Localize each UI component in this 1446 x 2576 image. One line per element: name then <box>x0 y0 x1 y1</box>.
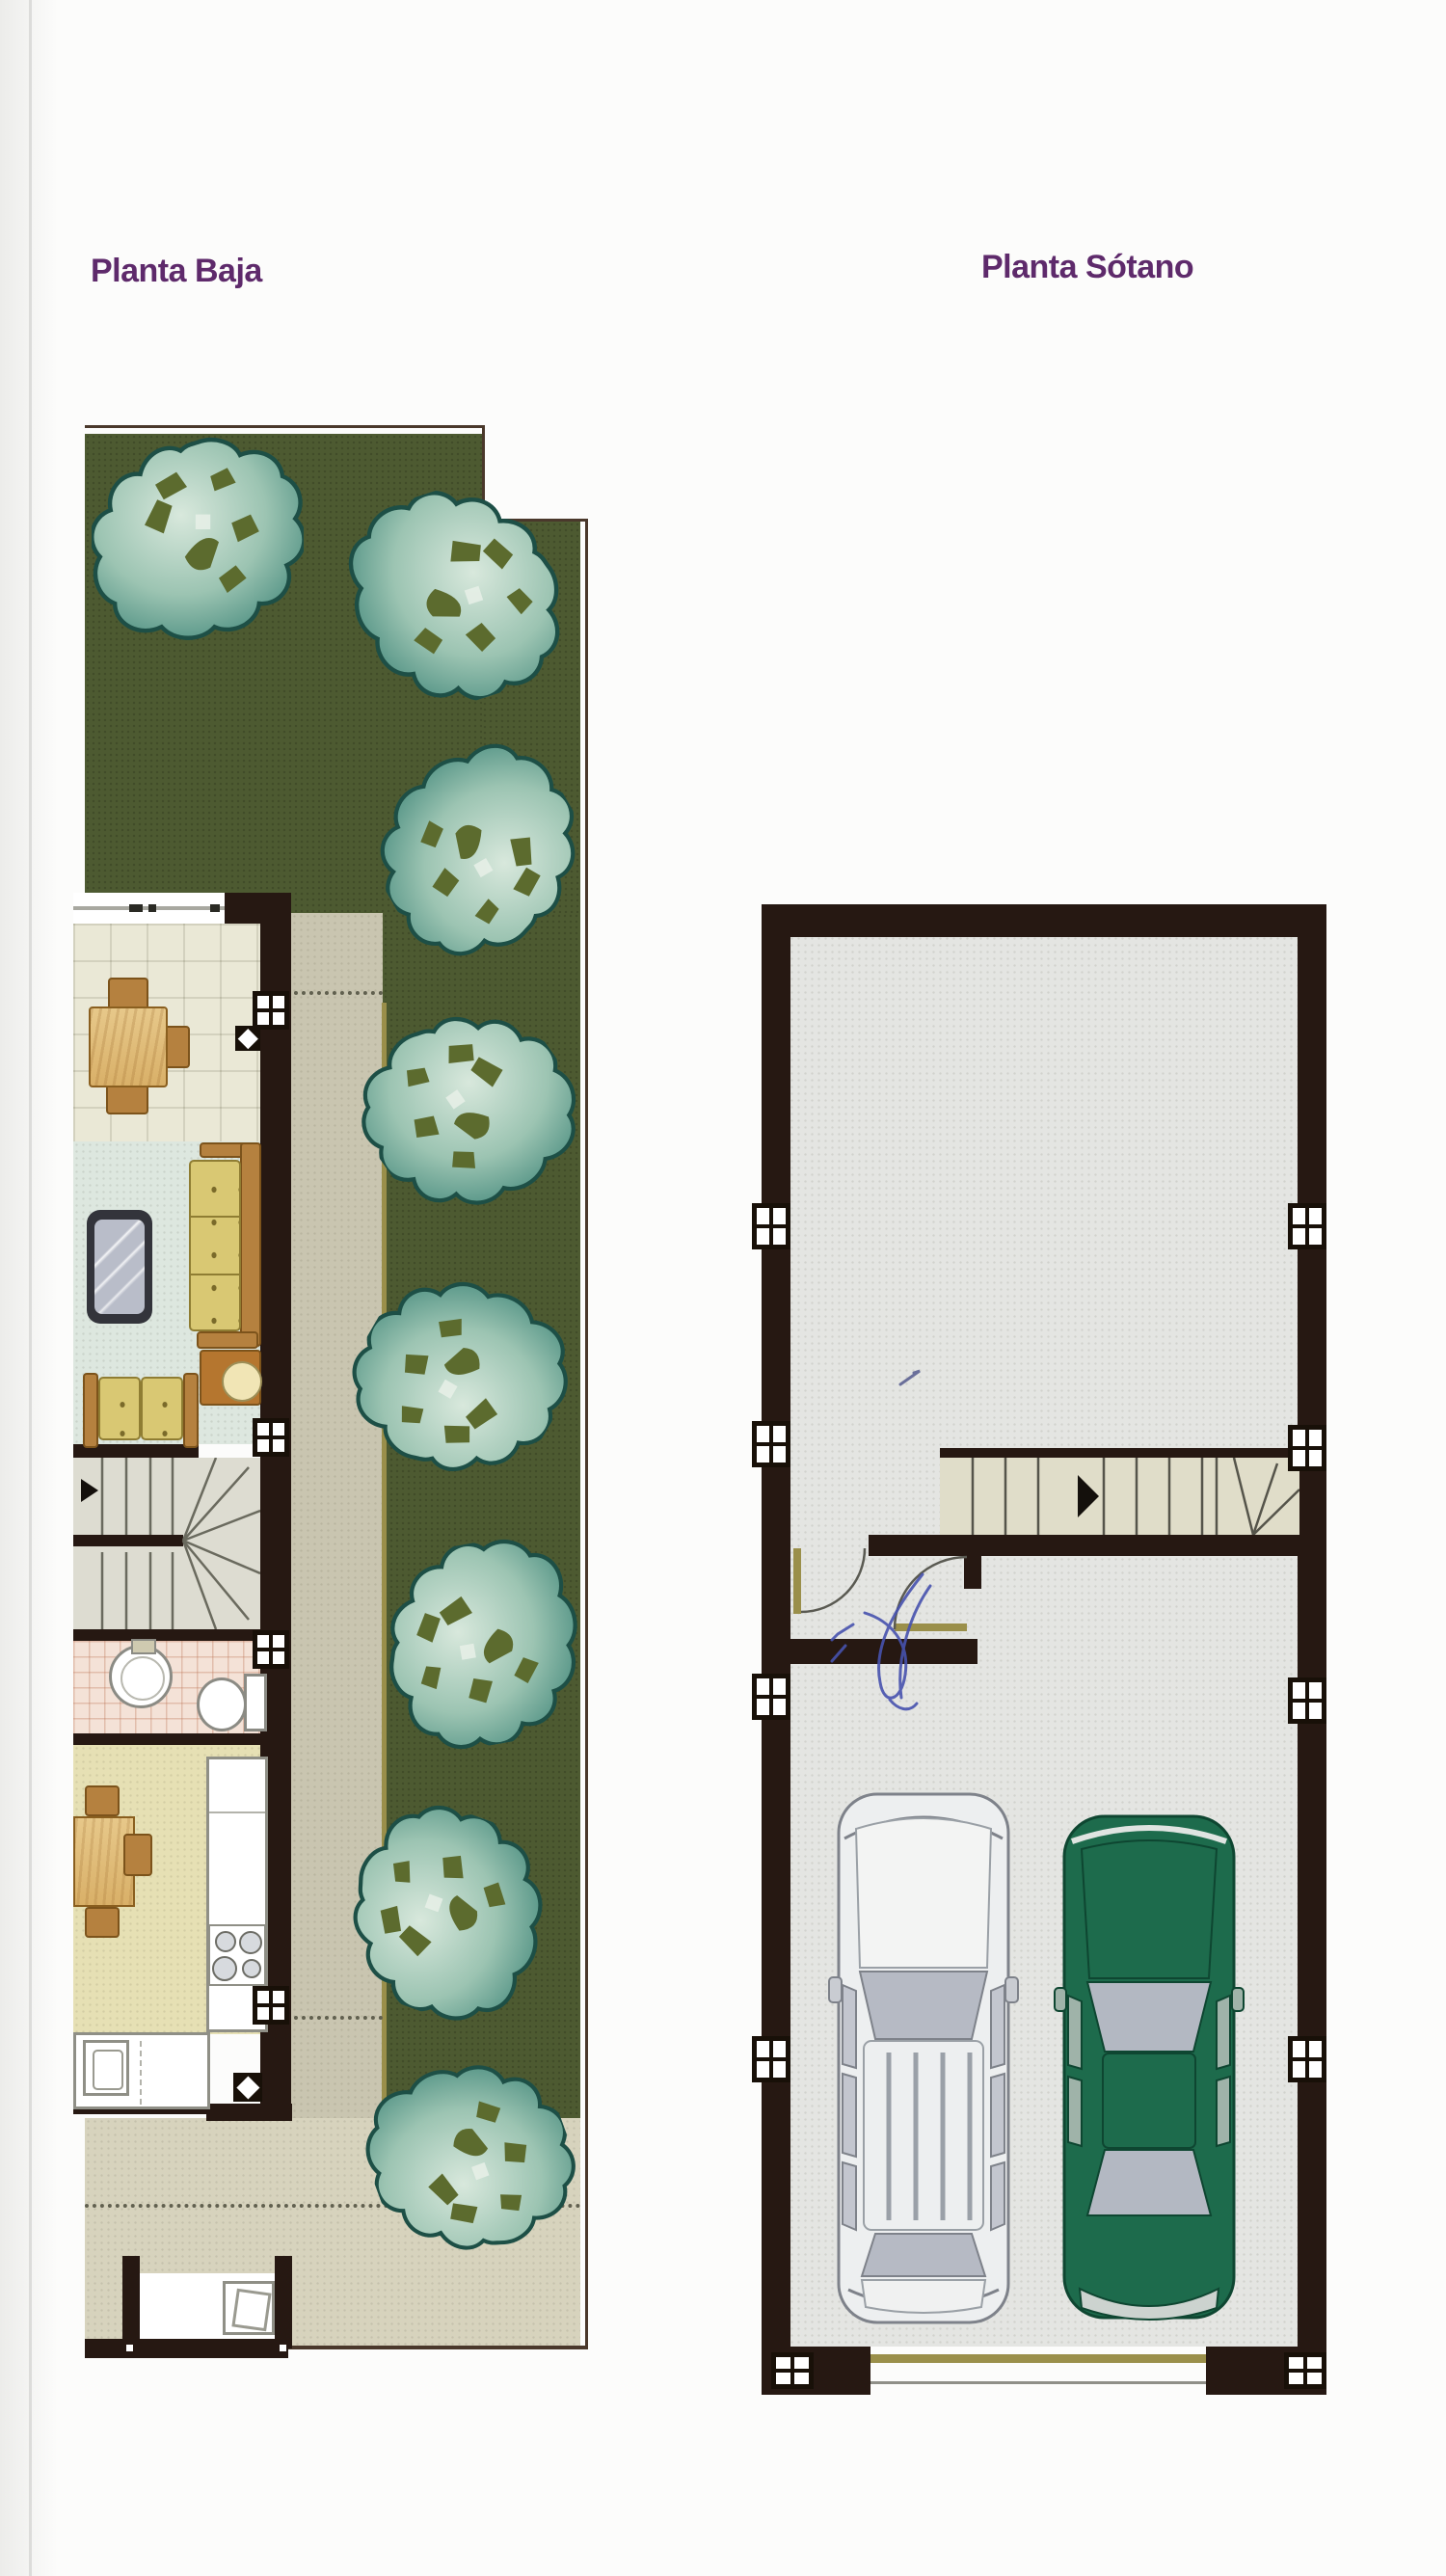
loveseat-armrest-left <box>83 1373 98 1448</box>
walkway-dash-top <box>286 991 383 995</box>
car-white-wagon <box>827 1779 1020 2338</box>
dining-table <box>89 1006 168 1087</box>
kitchen-bottom-line <box>73 2109 210 2114</box>
house-bottom-wall <box>206 2104 292 2121</box>
basement-wall-left <box>762 904 790 2395</box>
sofa-cushion-split1 <box>189 1216 241 1218</box>
lot-boundary-bottom <box>286 2346 588 2349</box>
sofa-cushion-split2 <box>189 1274 241 1275</box>
sofa-back-side <box>240 1142 261 1347</box>
lot-bottom-wall <box>85 2339 288 2358</box>
kitchen-sink-basin <box>93 2050 123 2090</box>
staircase-basement <box>940 1458 1299 1535</box>
porch-post-right <box>275 2256 292 2348</box>
window-icon <box>1288 2036 1326 2082</box>
bottom-wall-dot-left <box>126 2345 133 2351</box>
walkway-dash-bottom <box>286 2016 383 2020</box>
bottom-wall-dot-right <box>280 2345 286 2351</box>
porch-post-left <box>122 2256 140 2348</box>
staircase-ground <box>73 1458 260 1629</box>
bush-icon <box>92 434 304 646</box>
title-planta-baja: Planta Baja <box>91 253 262 290</box>
toilet-bowl <box>197 1677 247 1731</box>
glass-coffee-table <box>87 1210 152 1324</box>
vent-icon <box>233 2073 262 2102</box>
wall-bath-kitchen <box>73 1733 291 1745</box>
stove-burners <box>208 1924 266 1986</box>
lot-boundary-top <box>85 425 484 428</box>
garage-door-line <box>870 2354 1206 2363</box>
window-icon <box>253 1986 289 2025</box>
counter-divider <box>209 1811 265 1813</box>
dining-chair-top <box>108 978 148 1010</box>
car-green-sedan <box>1053 1799 1245 2335</box>
window-icon <box>1284 2352 1326 2389</box>
basement-stair-top-wall <box>940 1448 1299 1458</box>
scanned-floorplan-page: Planta Baja Planta Sótano <box>0 0 1446 2576</box>
garage-threshold-line <box>870 2381 1206 2384</box>
porch-fixture <box>223 2281 275 2335</box>
sofa-armrest-bottom <box>197 1331 258 1349</box>
glass-coffee-table-top <box>94 1220 145 1314</box>
loveseat-cushion-right <box>141 1377 183 1440</box>
kitchen-chair-bottom <box>85 1907 120 1938</box>
window-icon <box>752 1421 790 1467</box>
window-icon <box>253 991 289 1030</box>
sofa-cushions <box>189 1160 241 1331</box>
front-window-band <box>73 893 225 926</box>
porch-fixture-detail <box>231 2289 271 2332</box>
stair-direction-arrow <box>1078 1475 1099 1517</box>
vent-icon <box>235 1026 260 1051</box>
table-lamp <box>222 1361 262 1402</box>
loveseat-armrest-right <box>183 1373 199 1448</box>
kitchen-chair-right <box>123 1834 152 1876</box>
dining-chair-bottom <box>106 1084 148 1114</box>
window-icon <box>752 1674 790 1720</box>
window-icon <box>752 2036 790 2082</box>
window-icon <box>253 1418 289 1457</box>
loveseat-cushion-left <box>98 1377 141 1440</box>
kitchen-sink <box>83 2040 129 2096</box>
window-band-tick <box>148 904 156 912</box>
pen-dash <box>897 1367 925 1388</box>
window-icon <box>771 2352 814 2389</box>
basement-wall-right <box>1298 904 1326 2395</box>
counter-dash <box>140 2041 142 2105</box>
window-band-tick <box>129 904 143 912</box>
window-icon <box>1288 1677 1326 1724</box>
window-icon <box>1288 1203 1326 1249</box>
basin-faucet <box>131 1639 156 1654</box>
kitchen-chair-top <box>85 1785 120 1816</box>
wash-basin-inner <box>120 1656 165 1701</box>
pen-scribble <box>815 1557 959 1721</box>
window-icon <box>752 1203 790 1249</box>
lot-boundary-right <box>585 519 588 2348</box>
stair-direction-arrow <box>81 1479 98 1502</box>
title-planta-sotano: Planta Sótano <box>981 249 1193 286</box>
basement-wall-top <box>762 904 1326 937</box>
window-band-tick <box>210 904 220 912</box>
window-icon <box>253 1630 289 1669</box>
toilet-tank <box>244 1674 267 1731</box>
bush-icon <box>366 1526 601 1760</box>
window-icon <box>1288 1425 1326 1471</box>
scan-edge-line <box>29 0 32 2576</box>
